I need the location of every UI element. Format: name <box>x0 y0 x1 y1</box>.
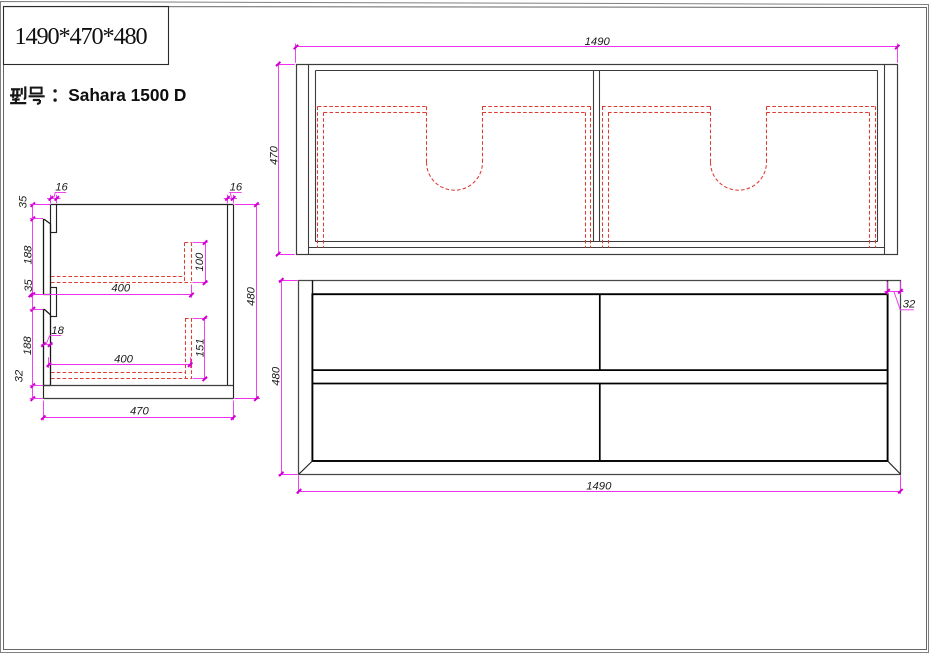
svg-text:Sahara 1500 D: Sahara 1500 D <box>68 85 186 105</box>
svg-text:151: 151 <box>194 338 206 357</box>
svg-text:470: 470 <box>130 405 150 417</box>
svg-text:1490: 1490 <box>585 36 611 48</box>
svg-text:470: 470 <box>268 145 280 165</box>
svg-text:400: 400 <box>111 282 131 294</box>
svg-text:188: 188 <box>22 245 34 265</box>
svg-text:16: 16 <box>230 182 243 194</box>
svg-text:35: 35 <box>23 279 35 292</box>
svg-text:400: 400 <box>114 354 134 366</box>
svg-text:35: 35 <box>17 195 29 208</box>
svg-text:1490: 1490 <box>586 480 612 492</box>
svg-text:18: 18 <box>51 325 64 337</box>
svg-text:32: 32 <box>903 299 916 311</box>
svg-text:188: 188 <box>22 336 34 356</box>
svg-text:480: 480 <box>246 286 258 306</box>
svg-text:32: 32 <box>13 369 25 382</box>
svg-text:100: 100 <box>194 252 206 272</box>
svg-text:480: 480 <box>270 366 282 386</box>
svg-text:16: 16 <box>55 182 68 194</box>
svg-text:1490*470*480: 1490*470*480 <box>15 23 148 50</box>
